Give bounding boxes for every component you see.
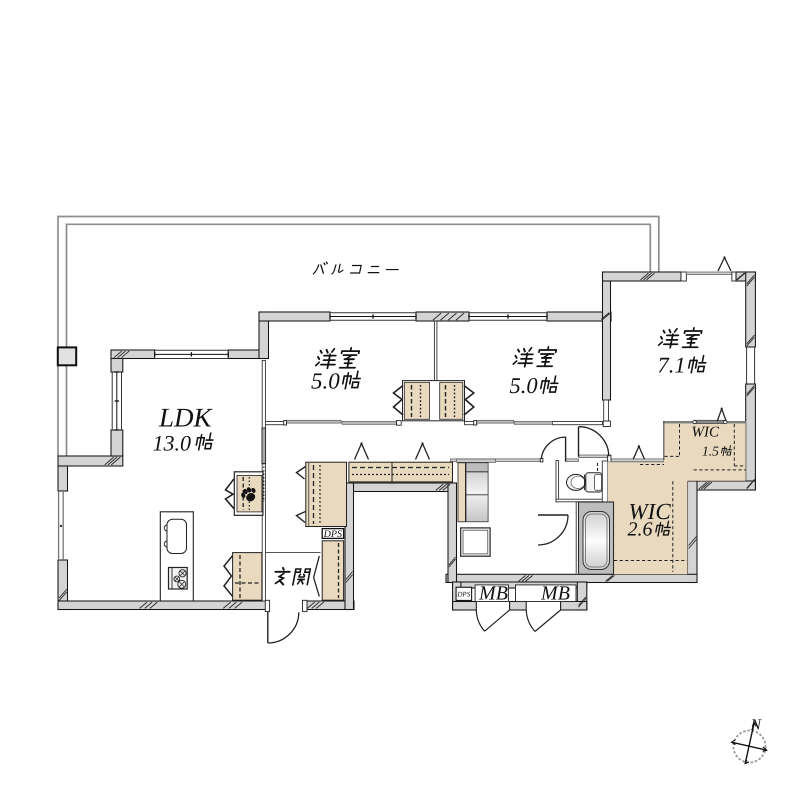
- svg-text:7.1: 7.1: [658, 353, 686, 378]
- svg-text:N: N: [750, 717, 763, 734]
- svg-text:MB: MB: [540, 583, 570, 605]
- svg-text:13.0: 13.0: [153, 431, 192, 456]
- svg-text:DPS: DPS: [456, 591, 470, 599]
- svg-text:LDK: LDK: [158, 403, 214, 433]
- svg-text:DPS: DPS: [323, 529, 342, 540]
- svg-text:2.6: 2.6: [628, 519, 653, 541]
- svg-text:MB: MB: [478, 583, 508, 605]
- svg-text:WIC: WIC: [692, 425, 720, 441]
- svg-text:1.5: 1.5: [702, 444, 719, 459]
- svg-text:5.0: 5.0: [311, 369, 340, 394]
- svg-text:5.0: 5.0: [510, 373, 538, 398]
